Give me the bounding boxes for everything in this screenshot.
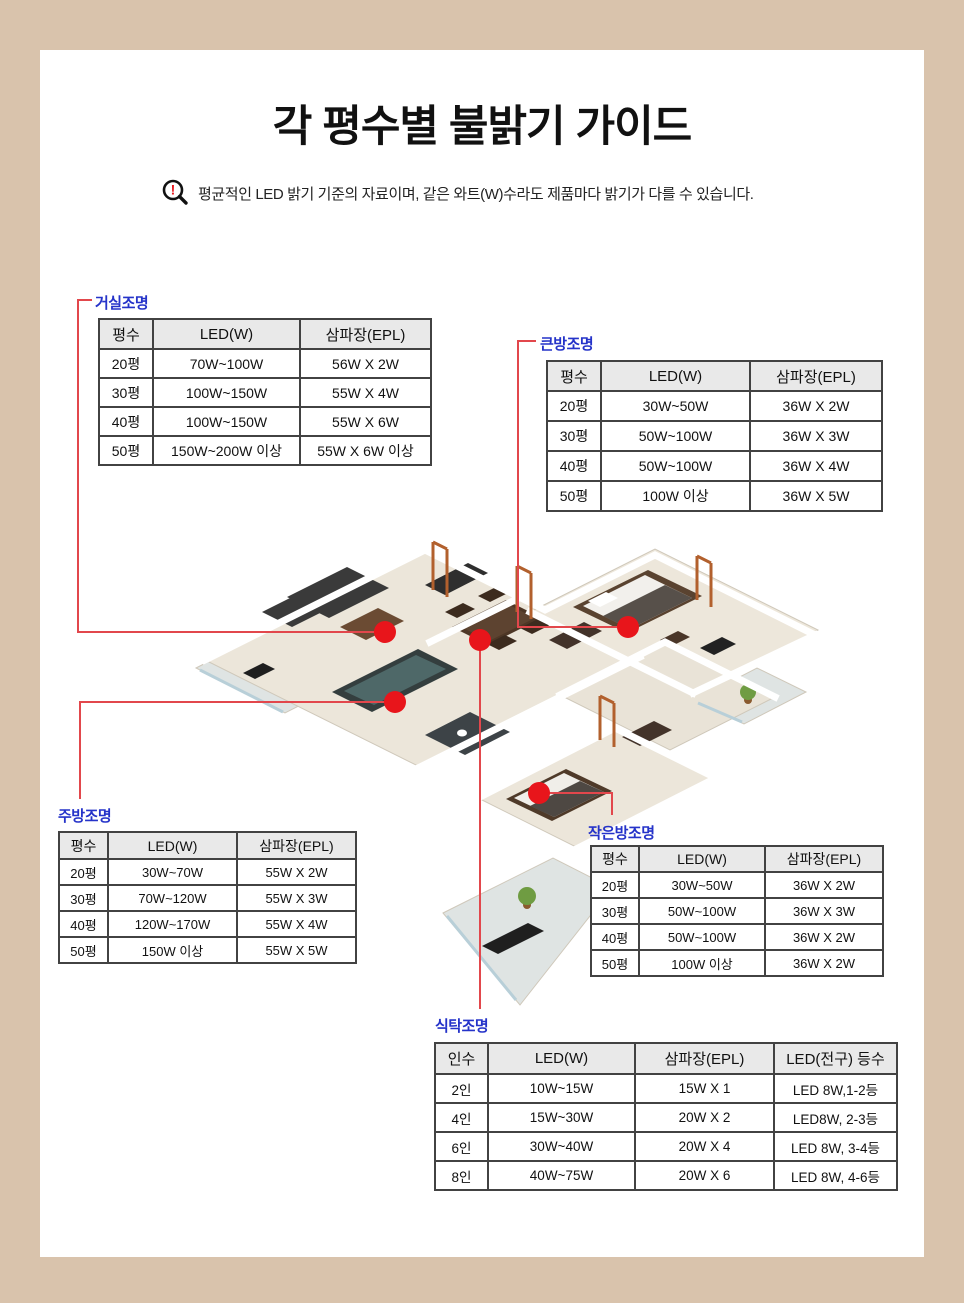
column-header: LED(W) — [108, 832, 237, 859]
kitchen-lighting-table: 평수LED(W)삼파장(EPL)20평30W~70W55W X 2W30평70W… — [58, 831, 357, 964]
table-cell: 15W X 1 — [635, 1074, 774, 1103]
column-header: 평수 — [547, 361, 601, 391]
dining-table-lighting-table: 인수LED(W)삼파장(EPL)LED(전구) 등수2인10W~15W15W X… — [434, 1042, 898, 1191]
table-cell: 36W X 2W — [765, 924, 883, 950]
table-cell: 150W 이상 — [108, 937, 237, 963]
table-cell: 50W~100W — [639, 924, 765, 950]
table-cell: 50평 — [59, 937, 108, 963]
table-cell: 36W X 4W — [750, 451, 882, 481]
table-row: 6인30W~40W20W X 4LED 8W, 3-4등 — [435, 1132, 897, 1161]
table-cell: 100W~150W — [153, 407, 300, 436]
table-row: 20평30W~50W36W X 2W — [591, 872, 883, 898]
table-cell: 4인 — [435, 1103, 488, 1132]
table-cell: 6인 — [435, 1132, 488, 1161]
table-cell: LED 8W, 4-6등 — [774, 1161, 897, 1190]
table-row: 40평50W~100W36W X 2W — [591, 924, 883, 950]
table-row: 8인40W~75W20W X 6LED 8W, 4-6등 — [435, 1161, 897, 1190]
table-cell: LED 8W, 3-4등 — [774, 1132, 897, 1161]
table-row: 20평70W~100W56W X 2W — [99, 349, 431, 378]
callout-label-smallroom: 작은방조명 — [588, 822, 655, 843]
table-cell: 70W~120W — [108, 885, 237, 911]
table-cell: 70W~100W — [153, 349, 300, 378]
table-cell: 100W~150W — [153, 378, 300, 407]
header-row: 평수LED(W)삼파장(EPL) — [547, 361, 882, 391]
table-cell: 55W X 2W — [237, 859, 356, 885]
table-row: 50평150W~200W 이상55W X 6W 이상 — [99, 436, 431, 465]
table-row: 50평100W 이상36W X 2W — [591, 950, 883, 976]
table-cell: 36W X 2W — [765, 872, 883, 898]
callout-label-living: 거실조명 — [95, 292, 148, 313]
table-cell: LED8W, 2-3등 — [774, 1103, 897, 1132]
table-cell: 56W X 2W — [300, 349, 431, 378]
table-cell: 30W~70W — [108, 859, 237, 885]
small-room-lighting-table: 평수LED(W)삼파장(EPL)20평30W~50W36W X 2W30평50W… — [590, 845, 884, 977]
column-header: LED(W) — [153, 319, 300, 349]
table-cell: 55W X 3W — [237, 885, 356, 911]
table-cell: 36W X 5W — [750, 481, 882, 511]
column-header: 평수 — [591, 846, 639, 872]
table-cell: 30W~40W — [488, 1132, 635, 1161]
table-row: 40평50W~100W36W X 4W — [547, 451, 882, 481]
table-cell: 100W 이상 — [639, 950, 765, 976]
table-cell: 40평 — [547, 451, 601, 481]
dot-bigroom — [617, 616, 639, 638]
table-cell: 55W X 4W — [300, 378, 431, 407]
table-cell: 40평 — [99, 407, 153, 436]
column-header: 삼파장(EPL) — [300, 319, 431, 349]
table-cell: 55W X 6W — [300, 407, 431, 436]
table-cell: 20W X 2 — [635, 1103, 774, 1132]
table-row: 30평50W~100W36W X 3W — [547, 421, 882, 451]
table-cell: 2인 — [435, 1074, 488, 1103]
column-header: LED(전구) 등수 — [774, 1043, 897, 1074]
living-room-lighting-table: 평수LED(W)삼파장(EPL)20평70W~100W56W X 2W30평10… — [98, 318, 432, 466]
column-header: LED(W) — [639, 846, 765, 872]
table-cell: 55W X 6W 이상 — [300, 436, 431, 465]
table-cell: 50W~100W — [601, 451, 750, 481]
column-header: 인수 — [435, 1043, 488, 1074]
table-cell: 120W~170W — [108, 911, 237, 937]
table-cell: 40W~75W — [488, 1161, 635, 1190]
table-cell: 20W X 4 — [635, 1132, 774, 1161]
table-cell: 100W 이상 — [601, 481, 750, 511]
table-cell: 20W X 6 — [635, 1161, 774, 1190]
infographic-page: 각 평수별 불밝기 가이드 ! 평균적인 LED 밝기 기준의 자료이며, 같은… — [0, 0, 964, 1303]
header-row: 평수LED(W)삼파장(EPL) — [591, 846, 883, 872]
table-cell: 40평 — [59, 911, 108, 937]
table-cell: 30W~50W — [601, 391, 750, 421]
table-cell: 20평 — [99, 349, 153, 378]
table-row: 20평30W~70W55W X 2W — [59, 859, 356, 885]
table-row: 4인15W~30W20W X 2LED8W, 2-3등 — [435, 1103, 897, 1132]
table-cell: 8인 — [435, 1161, 488, 1190]
column-header: 평수 — [59, 832, 108, 859]
table-row: 30평70W~120W55W X 3W — [59, 885, 356, 911]
table-cell: 30평 — [591, 898, 639, 924]
table-cell: 20평 — [547, 391, 601, 421]
table-cell: 10W~15W — [488, 1074, 635, 1103]
column-header: 삼파장(EPL) — [237, 832, 356, 859]
dot-living — [374, 621, 396, 643]
table-row: 50평100W 이상36W X 5W — [547, 481, 882, 511]
column-header: LED(W) — [488, 1043, 635, 1074]
table-cell: 15W~30W — [488, 1103, 635, 1132]
column-header: 삼파장(EPL) — [635, 1043, 774, 1074]
table-cell: 55W X 5W — [237, 937, 356, 963]
column-header: 평수 — [99, 319, 153, 349]
table-row: 50평150W 이상55W X 5W — [59, 937, 356, 963]
table-cell: 36W X 2W — [765, 950, 883, 976]
table-cell: 36W X 2W — [750, 391, 882, 421]
table-cell: 50평 — [591, 950, 639, 976]
header-row: 평수LED(W)삼파장(EPL) — [59, 832, 356, 859]
column-header: 삼파장(EPL) — [765, 846, 883, 872]
callout-label-kitchen: 주방조명 — [58, 805, 111, 826]
column-header: 삼파장(EPL) — [750, 361, 882, 391]
table-cell: 30평 — [547, 421, 601, 451]
table-row: 30평50W~100W36W X 3W — [591, 898, 883, 924]
table-cell: LED 8W,1-2등 — [774, 1074, 897, 1103]
table-cell: 50평 — [99, 436, 153, 465]
callout-label-dining: 식탁조명 — [435, 1015, 488, 1036]
table-cell: 50평 — [547, 481, 601, 511]
callout-label-bigroom: 큰방조명 — [540, 333, 593, 354]
table-cell: 50W~100W — [639, 898, 765, 924]
table-cell: 30평 — [59, 885, 108, 911]
table-cell: 36W X 3W — [750, 421, 882, 451]
header-row: 평수LED(W)삼파장(EPL) — [99, 319, 431, 349]
table-row: 20평30W~50W36W X 2W — [547, 391, 882, 421]
table-row: 2인10W~15W15W X 1LED 8W,1-2등 — [435, 1074, 897, 1103]
table-cell: 20평 — [59, 859, 108, 885]
table-cell: 150W~200W 이상 — [153, 436, 300, 465]
table-cell: 30W~50W — [639, 872, 765, 898]
table-row: 40평100W~150W55W X 6W — [99, 407, 431, 436]
table-cell: 30평 — [99, 378, 153, 407]
dot-kitchen — [384, 691, 406, 713]
big-room-lighting-table: 평수LED(W)삼파장(EPL)20평30W~50W36W X 2W30평50W… — [546, 360, 883, 512]
header-row: 인수LED(W)삼파장(EPL)LED(전구) 등수 — [435, 1043, 897, 1074]
column-header: LED(W) — [601, 361, 750, 391]
table-cell: 36W X 3W — [765, 898, 883, 924]
table-cell: 40평 — [591, 924, 639, 950]
table-row: 40평120W~170W55W X 4W — [59, 911, 356, 937]
table-cell: 55W X 4W — [237, 911, 356, 937]
table-row: 30평100W~150W55W X 4W — [99, 378, 431, 407]
dot-smallroom — [528, 782, 550, 804]
table-cell: 20평 — [591, 872, 639, 898]
table-cell: 50W~100W — [601, 421, 750, 451]
dot-dining — [469, 629, 491, 651]
